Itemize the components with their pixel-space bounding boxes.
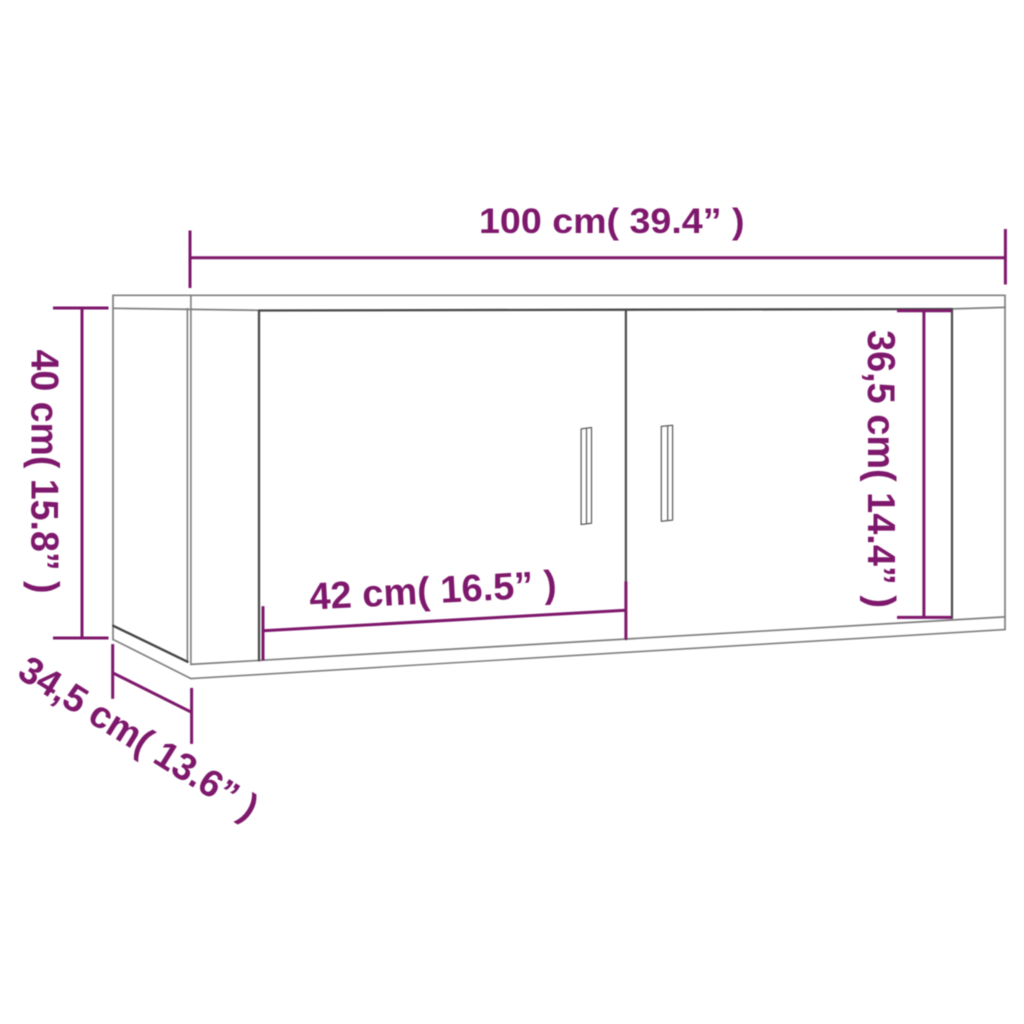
svg-text:100 cm( 39.4” ): 100 cm( 39.4” )	[479, 202, 745, 241]
svg-text:40 cm( 15.8” ): 40 cm( 15.8” )	[23, 350, 66, 594]
svg-text:36,5 cm( 14.4” ): 36,5 cm( 14.4” )	[859, 330, 902, 608]
